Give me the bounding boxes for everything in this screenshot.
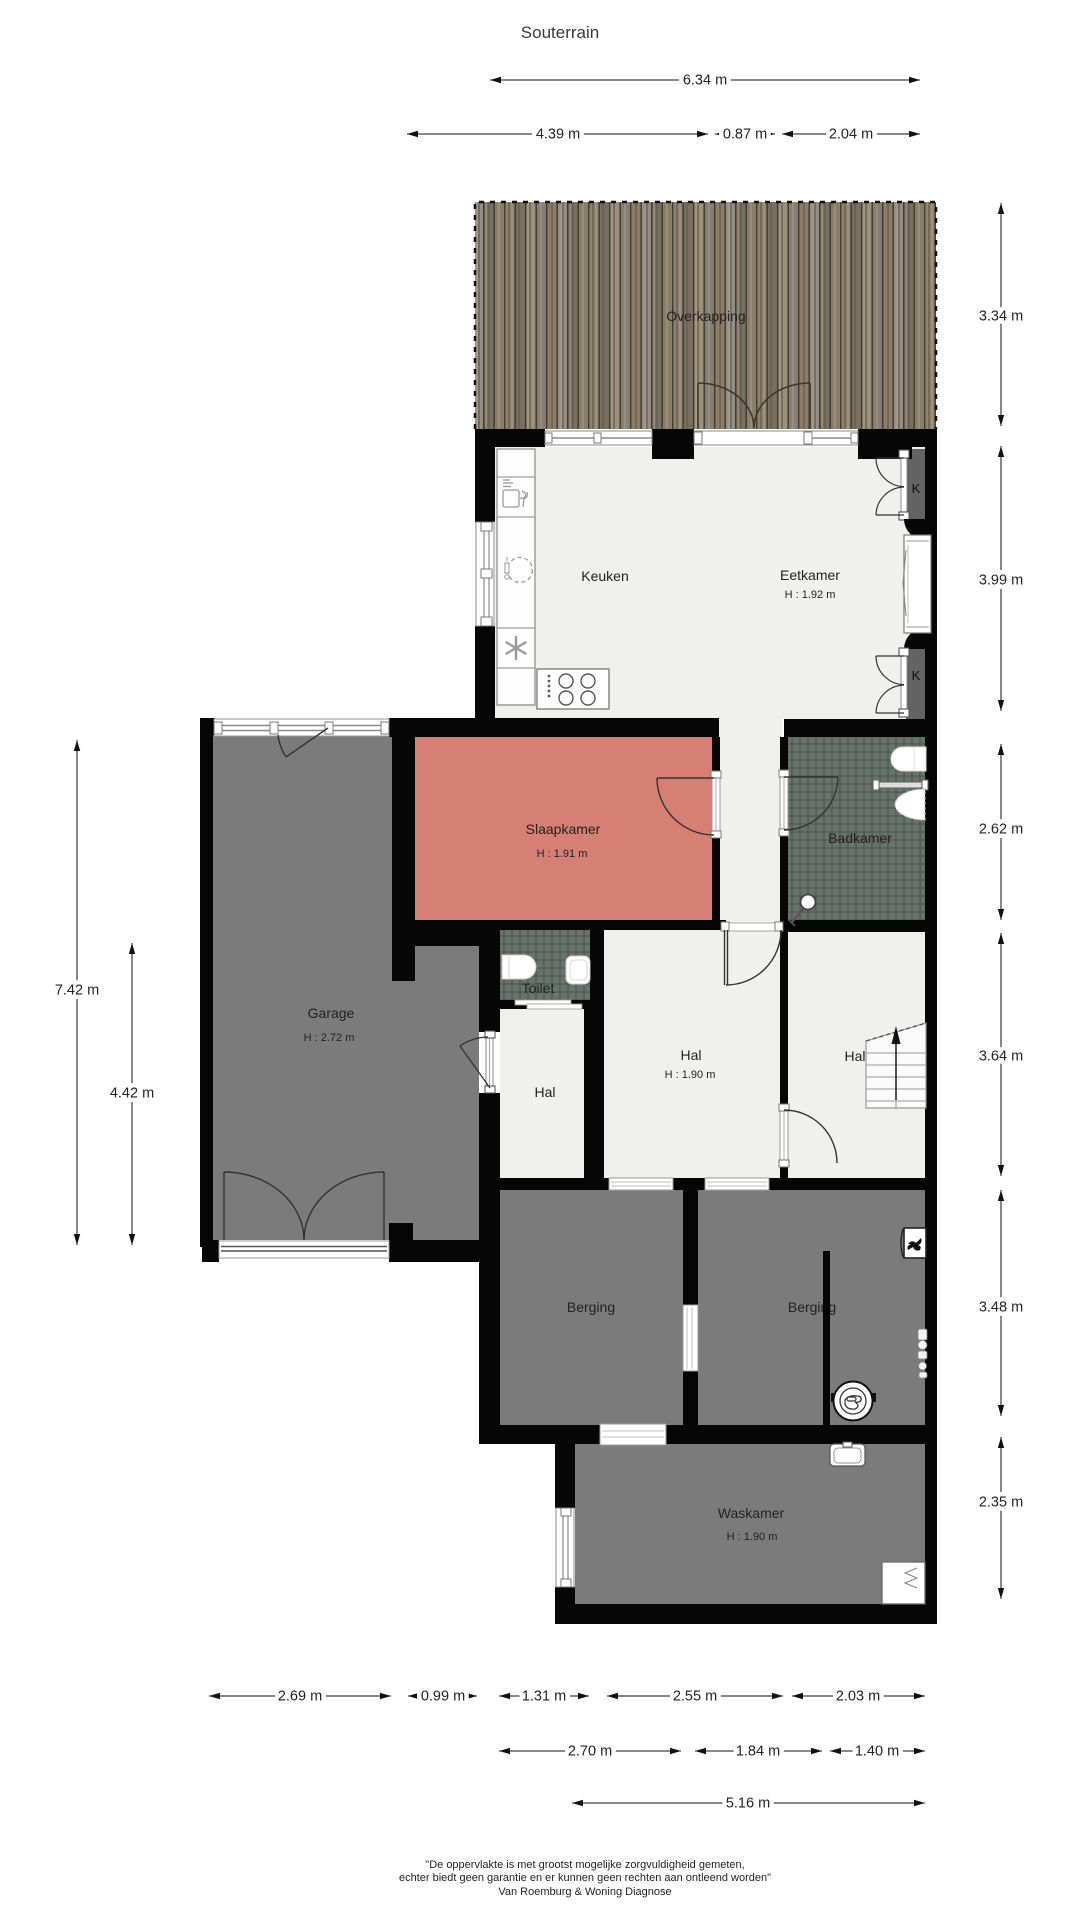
svg-text:Overkapping: Overkapping [666,308,745,324]
svg-text:Waskamer: Waskamer [718,1505,785,1521]
svg-text:Garage: Garage [308,1005,355,1021]
svg-text:2.03 m: 2.03 m [836,1689,880,1705]
svg-text:6.34 m: 6.34 m [683,73,727,89]
svg-text:echter biedt geen garantie en: echter biedt geen garantie en er kunnen … [399,1872,771,1884]
svg-text:2.35 m: 2.35 m [979,1495,1023,1511]
svg-text:3.64 m: 3.64 m [979,1049,1023,1065]
svg-text:K: K [912,481,921,496]
svg-text:2.70 m: 2.70 m [568,1744,612,1760]
svg-text:Hal: Hal [534,1084,555,1100]
svg-text:7.42 m: 7.42 m [55,983,99,999]
svg-text:2.55 m: 2.55 m [673,1689,717,1705]
svg-text:Keuken: Keuken [581,568,628,584]
svg-text:Van Roemburg & Woning Diagnose: Van Roemburg & Woning Diagnose [498,1886,671,1898]
svg-text:1.84 m: 1.84 m [736,1744,780,1760]
svg-text:0.99 m: 0.99 m [421,1689,465,1705]
svg-text:H : 1.92 m: H : 1.92 m [785,589,836,601]
svg-text:3.48 m: 3.48 m [979,1300,1023,1316]
svg-text:4.42 m: 4.42 m [110,1086,154,1102]
svg-text:0.87 m: 0.87 m [723,127,767,143]
svg-text:Toilet: Toilet [522,980,555,996]
svg-text:"De oppervlakte is met grootst: "De oppervlakte is met grootst mogelijke… [425,1859,744,1871]
svg-text:1.31 m: 1.31 m [522,1689,566,1705]
svg-text:H : 1.90 m: H : 1.90 m [727,1531,778,1543]
svg-text:Badkamer: Badkamer [828,830,892,846]
svg-text:Souterrain: Souterrain [521,23,599,42]
svg-text:3.34 m: 3.34 m [979,309,1023,325]
svg-text:Hal: Hal [680,1047,701,1063]
svg-text:Berging: Berging [567,1299,615,1315]
svg-text:4.39 m: 4.39 m [536,127,580,143]
svg-text:5.16 m: 5.16 m [726,1796,770,1812]
svg-text:2.62 m: 2.62 m [979,822,1023,838]
svg-text:1.40 m: 1.40 m [855,1744,899,1760]
svg-text:K: K [912,668,921,683]
svg-text:Slaapkamer: Slaapkamer [526,821,601,837]
svg-text:H : 1.91 m: H : 1.91 m [537,848,588,860]
svg-text:H : 1.90 m: H : 1.90 m [665,1069,716,1081]
svg-text:3.99 m: 3.99 m [979,573,1023,589]
svg-text:2.04 m: 2.04 m [829,127,873,143]
svg-text:H : 2.72 m: H : 2.72 m [304,1032,355,1044]
svg-text:Hal: Hal [844,1048,865,1064]
svg-text:Eetkamer: Eetkamer [780,567,840,583]
svg-text:2.69 m: 2.69 m [278,1689,322,1705]
